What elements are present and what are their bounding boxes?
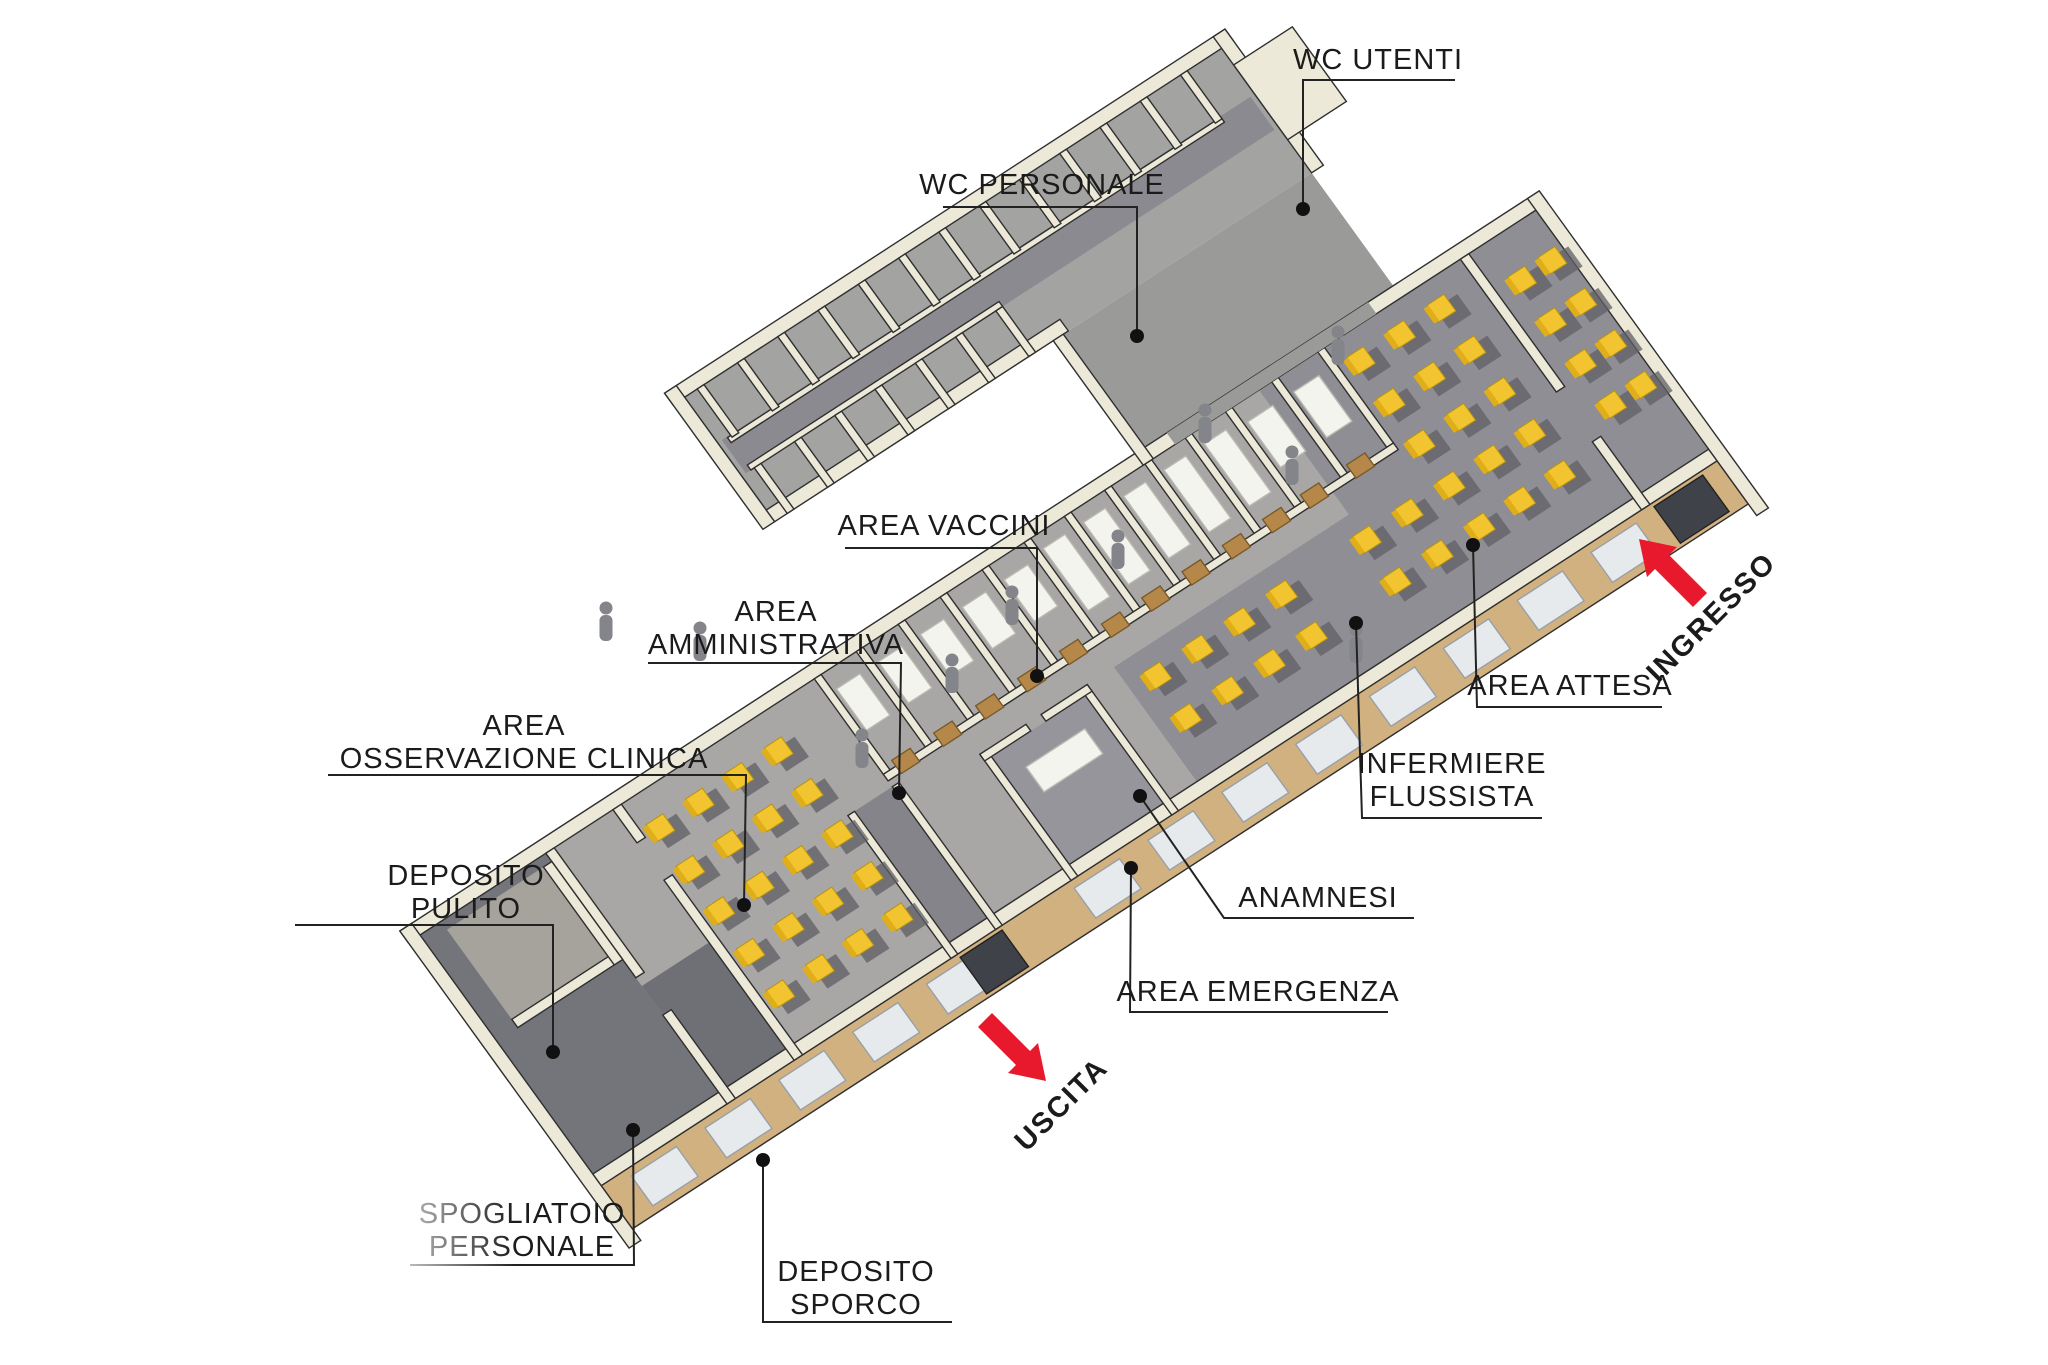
- ingresso-arrow-icon: [1639, 539, 1707, 607]
- label-area-emergenza-text: AREA EMERGENZA: [1116, 976, 1399, 1008]
- dot-infermiere: [1349, 616, 1363, 630]
- label-deposito-pulito-line1: DEPOSITO: [387, 860, 544, 892]
- label-deposito-sporco: DEPOSITO SPORCO: [777, 1256, 934, 1322]
- label-wc-utenti-text: WC UTENTI: [1293, 44, 1463, 76]
- person-figure: [600, 602, 613, 642]
- label-anamnesi-text: ANAMNESI: [1238, 882, 1397, 914]
- label-wc-personale-text: WC PERSONALE: [919, 169, 1165, 201]
- dot-spogliatoio: [626, 1123, 640, 1137]
- dot-area-attesa: [1466, 538, 1480, 552]
- person-figure: [1332, 326, 1345, 366]
- label-spogliatoio-personale: SPOGLIATOIO PERSONALE: [419, 1198, 626, 1264]
- floorplan-diagram: WC UTENTI WC PERSONALE AREA VACCINI AREA…: [0, 0, 2048, 1365]
- dot-deposito-sporco: [756, 1153, 770, 1167]
- person-figure: [1199, 404, 1212, 444]
- label-area-amministrativa: AREA AMMINISTRATIVA: [648, 596, 904, 662]
- label-area-osservazione: AREA OSSERVAZIONE CLINICA: [340, 710, 709, 776]
- dot-area-vaccini: [1030, 669, 1044, 683]
- dot-wc-utenti: [1296, 202, 1310, 216]
- label-deposito-pulito: DEPOSITO PULITO: [387, 860, 544, 926]
- label-wc-personale: WC PERSONALE: [919, 169, 1165, 202]
- label-deposito-sporco-line1: DEPOSITO: [777, 1256, 934, 1288]
- label-spogliatoio-line1: SPOGLIATOIO: [419, 1198, 626, 1230]
- building-rendering: [0, 0, 2048, 1365]
- label-area-emergenza: AREA EMERGENZA: [1116, 976, 1399, 1009]
- label-area-attesa: AREA ATTESA: [1467, 670, 1672, 703]
- person-figure: [856, 729, 869, 769]
- label-spogliatoio-line2: PERSONALE: [429, 1231, 615, 1263]
- label-area-attesa-text: AREA ATTESA: [1467, 670, 1672, 702]
- dot-area-emergenza: [1124, 861, 1138, 875]
- label-wc-utenti: WC UTENTI: [1293, 44, 1463, 77]
- person-figure: [946, 654, 959, 694]
- label-area-osservazione-line2: OSSERVAZIONE CLINICA: [340, 743, 709, 775]
- person-figure: [1112, 530, 1125, 570]
- label-area-vaccini: AREA VACCINI: [838, 510, 1051, 543]
- label-deposito-pulito-line2: PULITO: [411, 893, 521, 925]
- person-figure: [1286, 446, 1299, 486]
- dot-area-osservazione: [737, 898, 751, 912]
- dot-deposito-pulito: [546, 1045, 560, 1059]
- dot-area-amministrativa: [892, 786, 906, 800]
- label-infermiere-flussista: INFERMIERE FLUSSISTA: [1358, 748, 1547, 814]
- label-infermiere-line1: INFERMIERE: [1358, 748, 1547, 780]
- label-area-vaccini-text: AREA VACCINI: [838, 510, 1051, 542]
- dot-anamnesi: [1133, 789, 1147, 803]
- uscita-arrow-icon: [978, 1013, 1046, 1081]
- label-infermiere-line2: FLUSSISTA: [1370, 781, 1535, 813]
- label-anamnesi: ANAMNESI: [1238, 882, 1397, 915]
- label-deposito-sporco-line2: SPORCO: [790, 1289, 922, 1321]
- person-figure: [1006, 586, 1019, 626]
- label-area-amministrativa-line1: AREA: [735, 596, 818, 628]
- label-area-osservazione-line1: AREA: [483, 710, 566, 742]
- label-area-amministrativa-line2: AMMINISTRATIVA: [648, 629, 904, 661]
- dot-wc-personale: [1130, 329, 1144, 343]
